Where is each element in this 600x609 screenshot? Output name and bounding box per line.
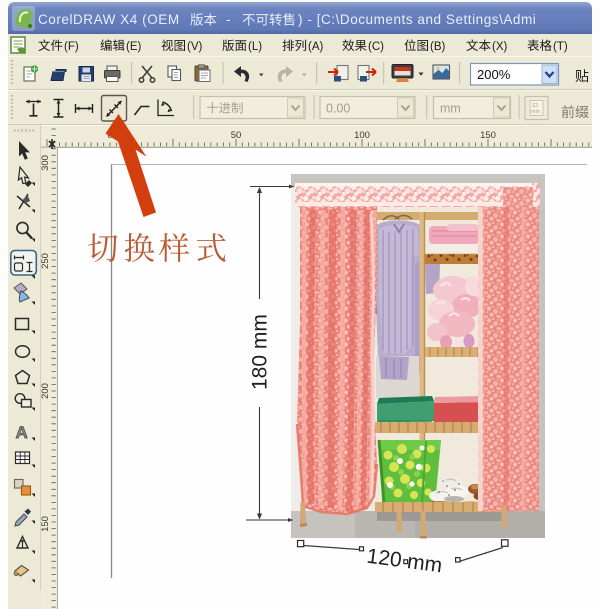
svg-text:CorelDRAW X4 (OEM: CorelDRAW X4 (OEM (38, 12, 180, 27)
svg-text:200%: 200% (477, 67, 511, 82)
svg-text:(A): (A) (308, 41, 324, 53)
svg-text:(X): (X) (492, 41, 508, 53)
svg-text:(V): (V) (187, 41, 203, 53)
svg-text:) - [C:\Documents and Settings: ) - [C:\Documents and Settings\Admi (298, 12, 536, 27)
svg-text:(L): (L) (248, 41, 262, 53)
svg-text:(E): (E) (126, 41, 142, 53)
svg-text:250: 250 (40, 253, 51, 269)
svg-text:(T): (T) (553, 41, 568, 53)
svg-text:A: A (16, 423, 28, 442)
svg-text:(C): (C) (368, 41, 384, 53)
svg-text:300: 300 (40, 155, 51, 171)
svg-text:mm: mm (440, 102, 461, 116)
svg-text:0.00: 0.00 (326, 102, 350, 116)
svg-text:100: 100 (354, 130, 370, 141)
svg-text:-: - (226, 12, 231, 27)
svg-text:200: 200 (40, 383, 51, 399)
svg-text:mm: mm (531, 109, 541, 115)
svg-text:150: 150 (480, 130, 496, 141)
svg-text:50: 50 (231, 130, 242, 141)
svg-text:(B): (B) (430, 41, 446, 53)
svg-text:(F): (F) (64, 41, 79, 53)
svg-text:180 mm: 180 mm (249, 314, 272, 390)
svg-text:150: 150 (40, 516, 51, 532)
